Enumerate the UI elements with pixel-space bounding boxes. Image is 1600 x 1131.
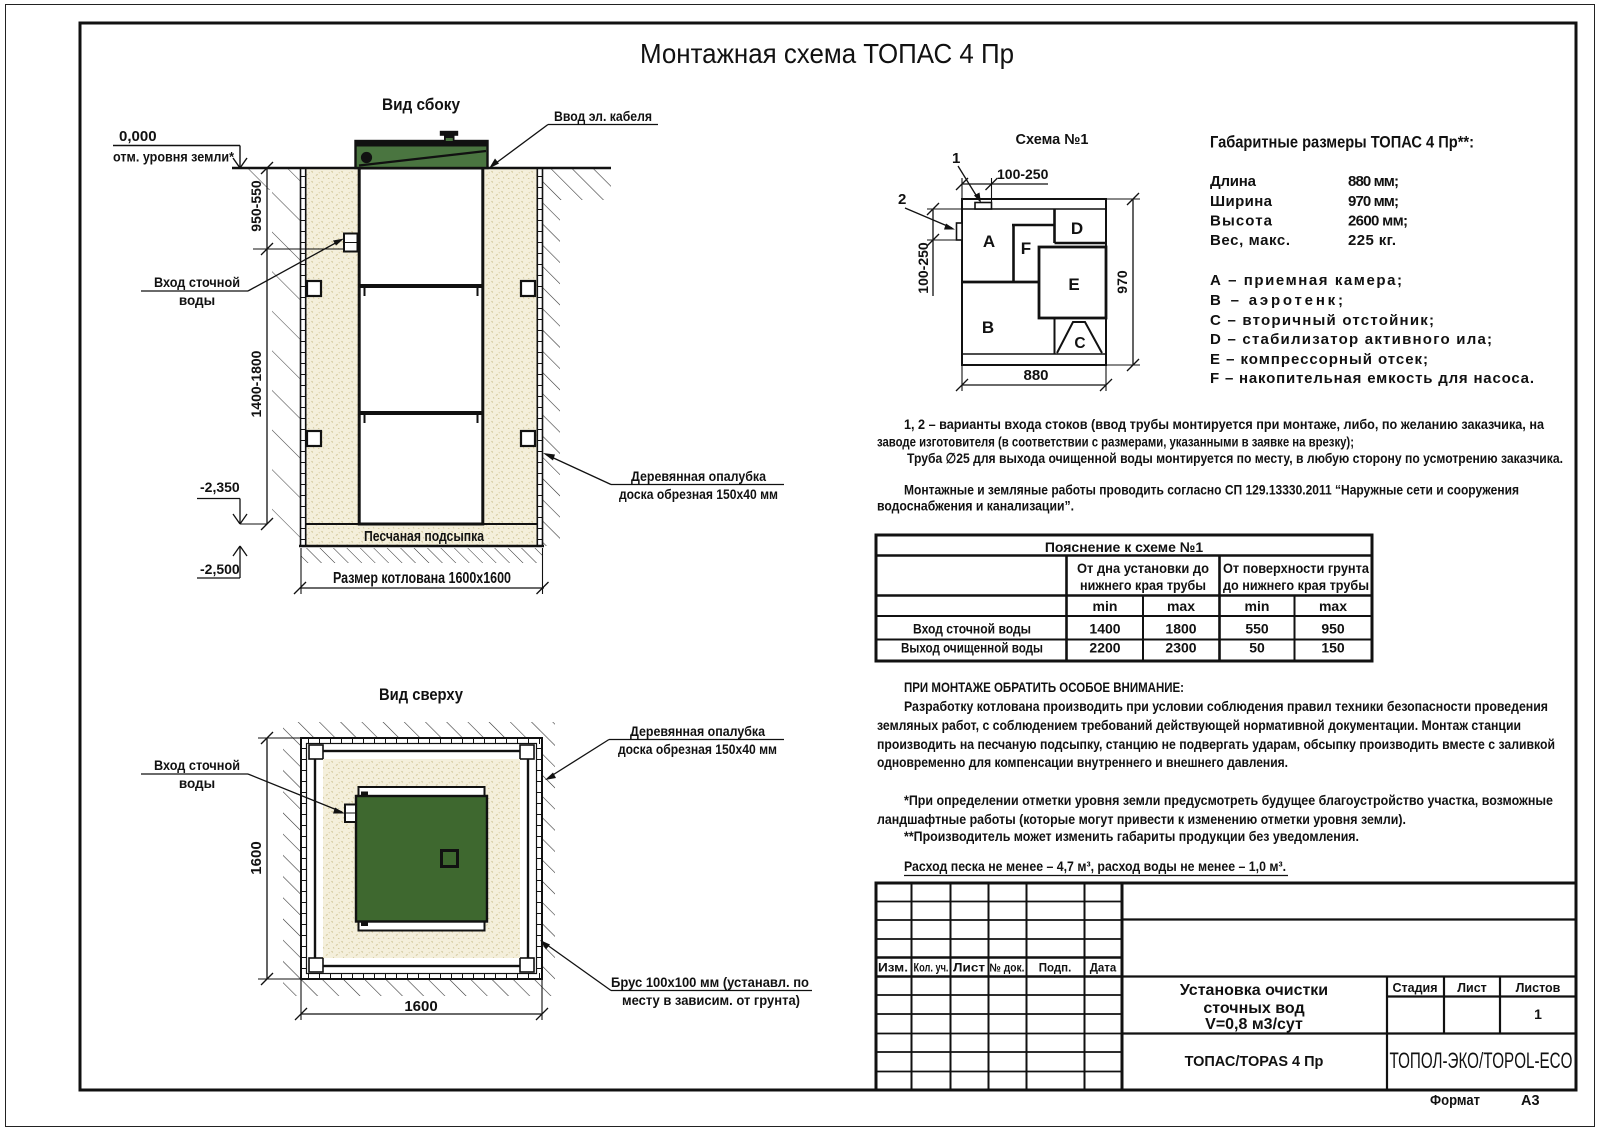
svg-text:Труба ∅25 для выхода очищенной: Труба ∅25 для выхода очищенной воды монт…: [907, 450, 1563, 466]
svg-text:производить на песчаную подсып: производить на песчаную подсыпку, станци…: [877, 736, 1555, 752]
svg-text:Вход сточной воды: Вход сточной воды: [913, 621, 1031, 637]
svg-text:Изм.: Изм.: [878, 963, 908, 975]
svg-text:880 мм;: 880 мм;: [1348, 173, 1399, 190]
svg-text:0,000: 0,000: [119, 128, 157, 145]
svg-text:1600: 1600: [404, 998, 437, 1015]
svg-text:50: 50: [1249, 640, 1265, 656]
svg-text:**Производитель может изменить: **Производитель может изменить габариты …: [904, 828, 1359, 844]
svg-text:550: 550: [1245, 621, 1269, 637]
svg-text:min: min: [1245, 598, 1270, 614]
svg-text:Вход сточной: Вход сточной: [154, 758, 240, 773]
svg-text:Размер котлована 1600x1600: Размер котлована 1600x1600: [333, 570, 511, 587]
svg-text:Пояснение к схеме №1: Пояснение к схеме №1: [1045, 539, 1204, 555]
svg-text:ПРИ МОНТАЖЕ ОБРАТИТЬ ОСОБОЕ ВН: ПРИ МОНТАЖЕ ОБРАТИТЬ ОСОБОЕ ВНИМАНИЕ:: [904, 679, 1184, 695]
svg-text:Деревянная опалубка: Деревянная опалубка: [631, 469, 766, 484]
svg-text:Габаритные размеры ТОПАС 4 Пр*: Габаритные размеры ТОПАС 4 Пр**:: [1210, 133, 1474, 152]
svg-text:Монтажная схема ТОПАС 4 Пр: Монтажная схема ТОПАС 4 Пр: [640, 38, 1014, 69]
svg-text:одновременно для компенсации в: одновременно для компенсации внутреннего…: [877, 754, 1288, 770]
svg-text:водоснабжения и канализации”.: водоснабжения и канализации”.: [877, 498, 1074, 514]
svg-text:Ширина: Ширина: [1210, 193, 1273, 210]
svg-text:1: 1: [952, 150, 960, 167]
svg-text:1: 1: [1534, 1006, 1542, 1022]
svg-text:А3: А3: [1521, 1093, 1540, 1109]
svg-text:Расход песка не менее – 4,7 м³: Расход песка не менее – 4,7 м³, расход в…: [904, 858, 1286, 874]
svg-text:1600: 1600: [248, 841, 265, 874]
svg-text:ТОПАС/TOPAS 4 Пр: ТОПАС/TOPAS 4 Пр: [1185, 1054, 1324, 1070]
svg-text:Установка очистки: Установка очистки: [1180, 982, 1328, 999]
svg-text:С – вторичный отстойник;: С – вторичный отстойник;: [1210, 312, 1434, 329]
svg-text:сточных вод: сточных вод: [1203, 1000, 1304, 1017]
svg-text:Брус 100x100 мм (устанавл. по: Брус 100x100 мм (устанавл. по: [611, 975, 809, 990]
svg-text:нижнего края трубы: нижнего края трубы: [1080, 577, 1206, 593]
svg-text:ландшафтные работы (которые мо: ландшафтные работы (которые могут привес…: [877, 811, 1406, 827]
svg-text:Лист: Лист: [953, 963, 985, 975]
svg-text:Схема №1: Схема №1: [1016, 132, 1089, 148]
svg-text:С: С: [1074, 335, 1085, 352]
svg-text:E: E: [1068, 275, 1079, 294]
svg-text:отм. уровня земли*: отм. уровня земли*: [113, 150, 235, 165]
svg-text:100-250: 100-250: [997, 166, 1049, 182]
svg-text:Стадия: Стадия: [1392, 981, 1437, 995]
svg-text:1400-1800: 1400-1800: [248, 350, 264, 417]
svg-text:*При определении отметки уровн: *При определении отметки уровня земли пр…: [904, 792, 1553, 808]
svg-text:225 кг.: 225 кг.: [1348, 232, 1396, 249]
svg-text:А: А: [983, 232, 995, 251]
svg-text:Деревянная опалубка: Деревянная опалубка: [630, 724, 765, 739]
svg-text:max: max: [1319, 598, 1347, 614]
svg-text:950: 950: [1321, 621, 1345, 637]
svg-text:max: max: [1167, 598, 1195, 614]
svg-text:Песчаная подсыпка: Песчаная подсыпка: [364, 529, 485, 545]
svg-text:2: 2: [898, 191, 906, 208]
svg-text:В – аэротенк;: В – аэротенк;: [1210, 292, 1343, 309]
svg-text:Лист: Лист: [1457, 981, 1487, 995]
svg-text:№ док.: № док.: [990, 963, 1025, 975]
svg-text:Вид сверху: Вид сверху: [379, 685, 463, 704]
svg-text:Высота: Высота: [1210, 213, 1273, 230]
svg-text:Вход сточной: Вход сточной: [154, 275, 240, 290]
svg-text:V=0,8 м3/сут: V=0,8 м3/сут: [1205, 1016, 1303, 1033]
svg-text:F: F: [1021, 239, 1031, 258]
svg-text:Ввод эл. кабеля: Ввод эл. кабеля: [554, 109, 652, 124]
svg-text:до нижнего края трубы: до нижнего края трубы: [1223, 577, 1369, 593]
svg-text:доска обрезная 150x40 мм: доска обрезная 150x40 мм: [619, 487, 778, 502]
svg-text:доска обрезная 150x40 мм: доска обрезная 150x40 мм: [618, 742, 777, 757]
svg-text:150: 150: [1321, 640, 1345, 656]
svg-text:От поверхности грунта: От поверхности грунта: [1223, 560, 1369, 576]
svg-text:F – накопительная емкость для: F – накопительная емкость для насоса.: [1210, 370, 1534, 387]
svg-text:-2,350: -2,350: [200, 479, 240, 495]
svg-text:2600 мм;: 2600 мм;: [1348, 213, 1408, 230]
svg-text:-2,500: -2,500: [200, 561, 240, 577]
svg-text:880: 880: [1023, 367, 1048, 384]
svg-text:Кол. уч.: Кол. уч.: [914, 963, 949, 975]
svg-text:1400: 1400: [1089, 621, 1120, 637]
svg-text:970: 970: [1114, 270, 1130, 294]
svg-text:2300: 2300: [1165, 640, 1196, 656]
svg-text:В: В: [982, 318, 994, 337]
svg-text:1, 2 – варианты входа стоков: 1, 2 – варианты входа стоков (ввод трубы…: [904, 416, 1544, 432]
svg-text:Вид сбоку: Вид сбоку: [382, 95, 460, 114]
svg-text:D: D: [1071, 219, 1083, 238]
svg-text:Монтажные и земляные работы пр: Монтажные и земляные работы проводить со…: [904, 482, 1519, 498]
svg-text:1800: 1800: [1165, 621, 1196, 637]
svg-text:100-250: 100-250: [915, 242, 931, 294]
svg-text:Листов: Листов: [1516, 981, 1561, 995]
svg-text:А – приемная камера;: А – приемная камера;: [1210, 272, 1402, 289]
svg-text:Разработку котлована производи: Разработку котлована производить при усл…: [904, 698, 1548, 714]
svg-text:земляных работ, с соблюдением: земляных работ, с соблюдением требований…: [877, 717, 1521, 733]
svg-text:воды: воды: [179, 776, 215, 791]
svg-text:ТОПОЛ-ЭКО/TOPOL-ECO: ТОПОЛ-ЭКО/TOPOL-ECO: [1390, 1048, 1573, 1073]
svg-text:От дна установки до: От дна установки до: [1077, 560, 1209, 576]
svg-text:Подп.: Подп.: [1039, 963, 1072, 975]
svg-text:воды: воды: [179, 293, 215, 308]
svg-text:E – компрессорный отсек;: E – компрессорный отсек;: [1210, 351, 1428, 368]
svg-text:950-550: 950-550: [248, 180, 264, 232]
svg-text:Длина: Длина: [1210, 173, 1257, 190]
svg-text:2200: 2200: [1089, 640, 1120, 656]
svg-text:Вес, макс.: Вес, макс.: [1210, 232, 1290, 249]
svg-text:min: min: [1093, 598, 1118, 614]
svg-text:месту в зависим. от грунта): месту в зависим. от грунта): [622, 993, 800, 1008]
svg-text:Выход очищенной воды: Выход очищенной воды: [901, 640, 1043, 656]
svg-text:970 мм;: 970 мм;: [1348, 193, 1399, 210]
svg-text:заводе изготовителя (в соответ: заводе изготовителя (в соответствии с ра…: [877, 434, 1354, 450]
svg-text:Формат: Формат: [1430, 1093, 1480, 1109]
svg-text:Дата: Дата: [1090, 963, 1117, 975]
